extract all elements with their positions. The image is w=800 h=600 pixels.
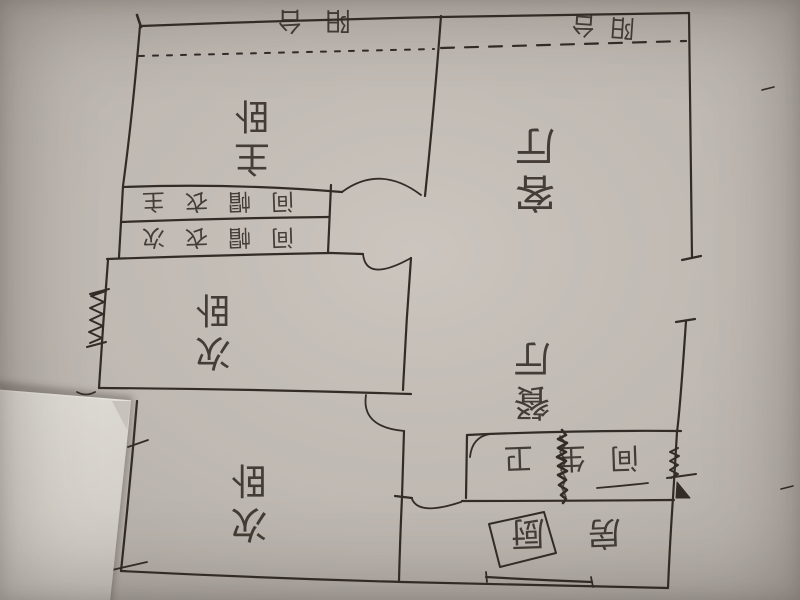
room-label-balcony-right: 阳台 [542, 9, 636, 42]
room-label-bathroom: 卫生间 [492, 442, 651, 473]
room-label-living-room: 客厅 [518, 120, 561, 214]
room-label-kitchen: 厨房 [490, 514, 642, 551]
floor-plan-sketch [0, 0, 800, 600]
room-label-balcony-left: 阳台 [225, 6, 351, 34]
room-label-second-bedroom-middle: 次卧 [198, 286, 237, 372]
floor-plan-photo: 阳台 阳台 主卧 主衣帽间 次衣帽间 次卧 客厅 餐厅 卫生间 次卧 厨房 [0, 0, 800, 600]
room-label-dining-room: 餐厅 [516, 334, 556, 422]
room-label-master-closet: 主衣帽间 [132, 188, 304, 213]
room-label-second-closet: 次衣帽间 [132, 224, 304, 249]
overlay-paper-sheet [0, 381, 133, 600]
room-label-master-bedroom: 主卧 [237, 92, 276, 178]
room-label-second-bedroom-bottom: 次卧 [233, 456, 273, 544]
